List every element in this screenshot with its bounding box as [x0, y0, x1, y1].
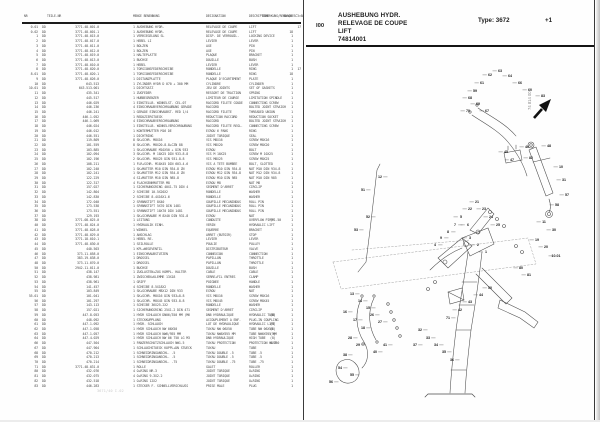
callout-number: 4 [434, 243, 436, 247]
callout-number: 59 [473, 89, 477, 93]
callout-number: 5 [460, 215, 462, 219]
callout-number: 30 [552, 228, 556, 232]
callout-number: 53 [354, 228, 358, 232]
callout-number: 51 [361, 188, 365, 192]
callout-number: 58 [555, 203, 559, 207]
callout-number: 32 [418, 328, 422, 332]
callout-number: 29 [356, 343, 360, 347]
callout-number: 64 [508, 74, 512, 78]
callout-number: 42 [458, 308, 462, 312]
callout-number: 67 [485, 109, 489, 113]
callout-number: 45 [504, 150, 508, 154]
column-divider-line [303, 0, 304, 422]
callout-number: 15 [366, 306, 370, 310]
page-right-edge [596, 0, 600, 422]
right-border-line [594, 0, 595, 422]
callout-number: 69 [476, 102, 480, 106]
callout-number: 57 [565, 193, 569, 197]
callout-number: 52 [366, 215, 370, 219]
callout-number: 22 [468, 207, 472, 211]
callout-number: 28 [348, 336, 352, 340]
callout-layer: 6263646166596068697067834546474882103157… [329, 69, 569, 384]
callout-number: 82 [529, 156, 533, 160]
callout-number: 61 [480, 81, 484, 85]
callout-number: 12 [378, 175, 382, 179]
callout-number: 21 [475, 200, 479, 204]
callout-number: 44 [479, 293, 483, 297]
callout-number: 80 [519, 266, 523, 270]
northeast-arrow-icon [534, 99, 551, 118]
callout-number: 13 [350, 292, 354, 296]
callout-number: 16 [343, 310, 347, 314]
callout-number: 81 [527, 273, 531, 277]
callout-number: 34 [434, 343, 438, 347]
callout-number: 48 [547, 144, 551, 148]
callout-number: 14 [358, 299, 362, 303]
callout-number: 19 [535, 238, 539, 242]
exploded-parts-diagram: 6263646166596068697067834546474882103157… [0, 0, 600, 422]
callout-number: 18 [361, 326, 365, 330]
callout-number: 68 [468, 96, 472, 100]
callout-number: 31 [562, 178, 566, 182]
callout-number: 50 [488, 286, 492, 290]
callout-number: 7 [454, 223, 456, 227]
callout-number: 46 [525, 145, 529, 149]
callout-number: 24 [489, 215, 493, 219]
callout-number: 63 [498, 69, 502, 73]
callout-number: 43 [468, 300, 472, 304]
callout-number: 55 [350, 373, 354, 377]
callout-number: 62 [488, 73, 492, 77]
callout-number: 41 [383, 343, 387, 347]
callout-number: 9 [440, 236, 442, 240]
callout-number: 40 [373, 350, 377, 354]
callout-number: 10.01 [552, 254, 561, 258]
callout-number: 17 [353, 318, 357, 322]
callout-number: 27 [378, 320, 382, 324]
callout-number: 66 [518, 81, 522, 85]
callout-number: 54 [338, 366, 342, 370]
callout-number: 70 [466, 109, 470, 113]
callout-number: 33 [426, 336, 430, 340]
callout-number: 23 [482, 207, 486, 211]
callout-number: 25 [496, 223, 500, 227]
callout-number: 47 [510, 158, 514, 162]
callout-number: 71 [446, 316, 450, 320]
callout-number: 36 [450, 358, 454, 362]
callout-number: 56 [329, 380, 333, 384]
callout-number: 35 [442, 350, 446, 354]
callout-number: 83 [541, 94, 545, 98]
parts-catalog-page: NRTEILE-NRMENGE BENENNUNGDESIGNATIONDESC… [0, 0, 600, 422]
callout-number: 37 [413, 343, 417, 347]
callout-number: 3 [469, 236, 471, 240]
vertical-drawing-number: 74 814 001 [527, 88, 532, 110]
callout-number: 1 [485, 250, 487, 254]
callout-number: 8 [447, 230, 449, 234]
callout-number: 11 [542, 220, 546, 224]
callout-number: 20 [544, 245, 548, 249]
callout-number: 26 [370, 313, 374, 317]
callout-number: 38 [343, 353, 347, 357]
callout-number: 10 [559, 165, 563, 169]
callout-number: 2 [477, 243, 479, 247]
callout-number: 6 [467, 223, 469, 227]
